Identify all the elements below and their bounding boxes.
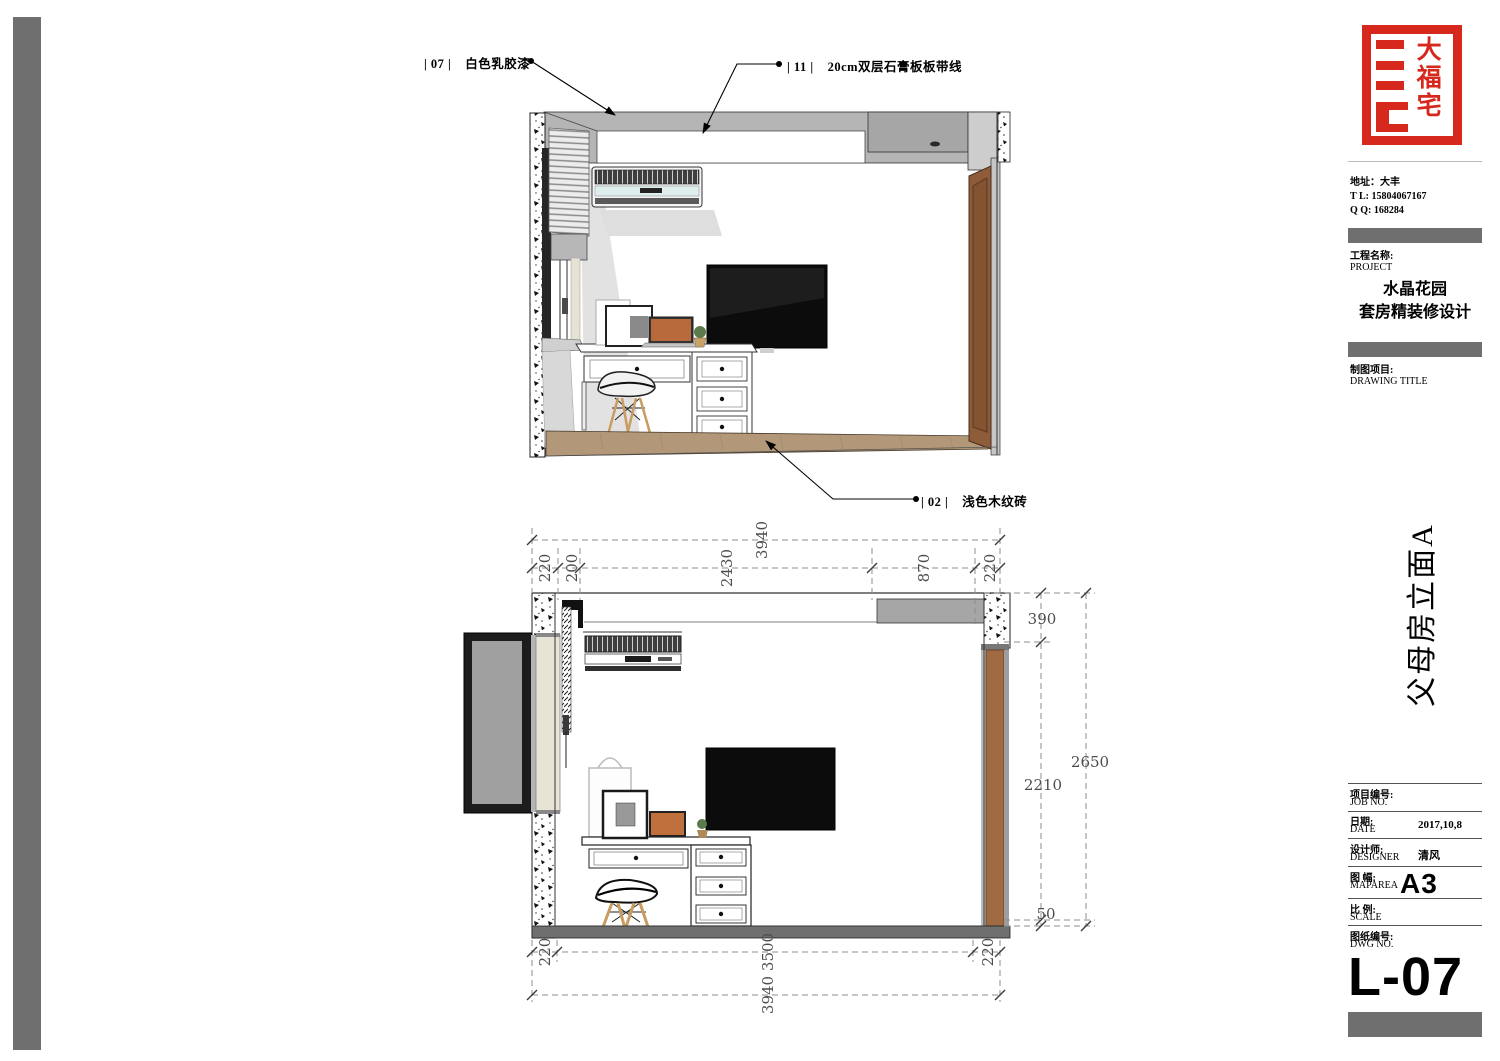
drawing-title-label: 制图项目: DRAWING TITLE [1350,361,1480,387]
date-value: 2017,10,8 [1418,819,1462,831]
wardrobe-2d [981,644,1009,926]
bulkhead-2d [877,599,984,623]
desk-items-2d [603,791,708,838]
blind-roller [551,234,587,260]
desk-items [596,300,706,347]
divider [1348,161,1482,162]
ceiling-recess [597,131,865,163]
plant-2d [697,819,707,829]
tv-2d [706,748,835,830]
dim-bottom-220l: 220 [536,938,554,967]
section-bar [1348,342,1482,357]
elevation-3d-view [420,40,1100,520]
company-contact: 地址：大丰 T L: 15804067167 Q Q: 168284 [1350,176,1427,218]
project-name-line1: 水晶花园 [1348,278,1482,301]
section-bar [1348,1012,1482,1037]
project-label-cn: 工程名称: [1350,247,1480,262]
dim-bottom-overall: 3940 [759,976,777,1014]
downlight [930,142,940,147]
elevation-title-text: 父母房立面A [1397,523,1441,707]
maparea-label-en: MAPAREA [1350,880,1398,891]
dim-top-seg: 200 [563,554,581,583]
logo-glyph [1371,34,1414,136]
elevation-title: 父母房立面A [1384,455,1454,775]
blind-pull [562,298,568,314]
elevation-2d-view: 3940 220 200 2430 870 220 390 2210 2650 … [440,510,1120,1040]
tv [707,265,827,353]
dim-top-seg: 2430 [718,549,736,587]
project-label-en: PROJECT [1350,262,1480,273]
titleblock-row-job: 项目编号: JOB NO. [1348,783,1482,812]
date-label-en: DATE [1350,824,1376,835]
company-address: 地址：大丰 [1350,176,1427,190]
company-logo: 大福宅 [1362,25,1462,145]
dim-right-2210: 2210 [1024,776,1062,794]
dim-top-overall: 3940 [753,521,771,559]
logo-text: 大福宅 [1414,36,1439,136]
venetian-blinds [549,128,589,236]
blind-cord-2d [562,607,571,768]
project-name: 水晶花园 套房精装修设计 [1348,278,1482,324]
plant [694,326,706,338]
air-conditioner [592,167,702,207]
dim-top-seg: 220 [536,554,554,583]
curtain-edge [571,258,580,348]
titleblock-row-maparea: 图 幅: MAPAREA A3 [1348,867,1482,899]
curtain-panel [531,633,560,814]
company-qq: Q Q: 168284 [1350,204,1427,218]
dim-top-seg: 220 [981,554,999,583]
sheet-number: L-07 [1348,946,1463,1008]
designer-value: 清风 [1418,847,1440,863]
drawing-title-label-cn: 制图项目: [1350,361,1480,376]
air-conditioner-2d [583,632,682,671]
ceiling-3d [544,112,997,170]
wall-section-right-2d [984,593,1010,648]
dim-bottom-220r: 220 [979,938,997,967]
title-block: 大福宅 地址：大丰 T L: 15804067167 Q Q: 168284 工… [1348,0,1482,1061]
designer-label-en: DESIGNER [1350,852,1399,863]
maparea-value: A3 [1400,868,1438,900]
dim-right-390: 390 [1028,610,1057,628]
dim-top-seg: 870 [915,554,933,583]
titleblock-row-designer: 设计师: DESIGNER 清风 [1348,839,1482,867]
floor-3d [546,431,988,456]
ceiling-bulkhead [868,112,968,152]
job-label-en: JOB NO. [1350,797,1387,808]
titleblock-row-date: 日期: DATE 2017,10,8 [1348,811,1482,839]
dim-right-50: 50 [1036,905,1055,923]
company-phone: T L: 15804067167 [1350,190,1427,204]
page-edge-bar [13,17,41,1050]
dim-right-2650: 2650 [1071,753,1109,771]
project-label: 工程名称: PROJECT [1350,247,1480,273]
titleblock-row-scale: 比 例: SCALE [1348,899,1482,926]
project-name-line2: 套房精装修设计 [1348,301,1482,324]
dim-bottom-3500: 3500 [759,933,777,971]
drawing-title-label-en: DRAWING TITLE [1350,376,1480,387]
window-2d [464,633,532,813]
drawing-sheet: | 07 |白色乳胶漆 | 11 |20cm双层石膏板板带线 | 02 |浅色木… [0,0,1500,1061]
scale-label-en: SCALE [1350,912,1382,923]
section-bar [1348,228,1482,243]
